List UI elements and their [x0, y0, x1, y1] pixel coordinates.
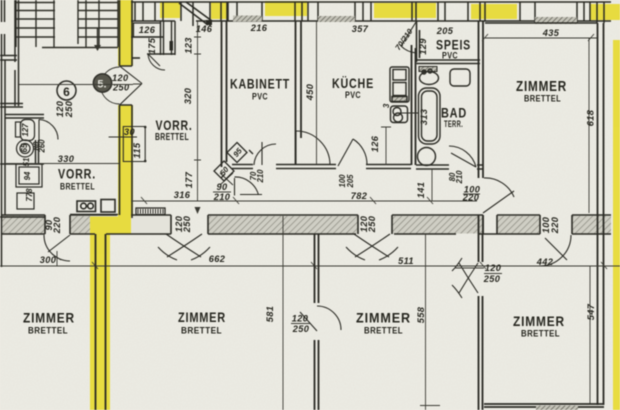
svg-text:511: 511	[398, 256, 414, 266]
svg-text:PVC: PVC	[442, 51, 458, 62]
svg-text:357: 357	[352, 24, 369, 34]
svg-text:250: 250	[64, 100, 74, 118]
svg-text:210: 210	[213, 192, 231, 202]
svg-text:141: 141	[416, 182, 426, 199]
svg-text:115: 115	[132, 142, 142, 158]
svg-text:662: 662	[209, 254, 226, 264]
svg-text:BRETTEL: BRETTEL	[521, 329, 560, 340]
svg-text:220: 220	[52, 216, 62, 234]
svg-text:778: 778	[25, 188, 34, 202]
svg-text:250: 250	[292, 324, 310, 334]
svg-text:ZIMMER: ZIMMER	[513, 313, 565, 329]
svg-text:782: 782	[351, 191, 368, 201]
svg-text:547: 547	[586, 303, 596, 320]
svg-text:VORR.: VORR.	[156, 117, 193, 133]
svg-text:205: 205	[346, 174, 355, 189]
svg-text:450: 450	[305, 83, 315, 101]
svg-text:TERR.: TERR.	[444, 119, 463, 130]
svg-text:120: 120	[485, 263, 502, 273]
svg-text:BRETTEL: BRETTEL	[524, 94, 561, 105]
svg-text:123: 123	[184, 37, 194, 54]
svg-text:BRETTEL: BRETTEL	[60, 182, 95, 193]
svg-text:146: 146	[196, 24, 213, 34]
svg-text:216: 216	[250, 23, 268, 33]
svg-text:250: 250	[483, 274, 501, 284]
svg-text:PVC: PVC	[252, 92, 268, 103]
svg-text:250: 250	[182, 215, 192, 233]
svg-text:120: 120	[292, 314, 309, 324]
svg-text:210: 210	[455, 170, 464, 185]
svg-text:177: 177	[184, 171, 194, 188]
svg-text:6: 6	[63, 85, 70, 99]
svg-text:BRETTEL: BRETTEL	[155, 132, 189, 143]
svg-text:618: 618	[586, 109, 596, 126]
svg-text:129: 129	[418, 38, 428, 55]
svg-text:250: 250	[112, 83, 130, 93]
svg-text:KABINETT: KABINETT	[230, 77, 290, 92]
svg-text:PVC: PVC	[345, 90, 361, 101]
svg-text:BRETTEL: BRETTEL	[364, 326, 403, 337]
svg-text:330: 330	[58, 154, 75, 164]
svg-text:126: 126	[139, 25, 156, 35]
svg-text:127: 127	[21, 123, 30, 137]
svg-text:260: 260	[38, 139, 47, 154]
svg-text:316: 316	[174, 190, 191, 200]
svg-text:ZIMMER: ZIMMER	[178, 309, 226, 325]
svg-text:435: 435	[542, 28, 560, 38]
svg-text:BRETTEL: BRETTEL	[181, 326, 222, 337]
svg-text:94: 94	[23, 171, 32, 180]
svg-text:BRETTEL: BRETTEL	[28, 326, 68, 337]
svg-text:ZIMMER: ZIMMER	[23, 310, 75, 326]
svg-text:313: 313	[419, 109, 429, 126]
svg-text:175: 175	[147, 37, 157, 54]
svg-text:442: 442	[536, 257, 554, 267]
svg-text:30: 30	[124, 127, 136, 137]
svg-text:KÜCHE: KÜCHE	[332, 76, 374, 91]
svg-text:65: 65	[20, 143, 29, 152]
svg-text:581: 581	[265, 306, 275, 323]
svg-text:210: 210	[256, 169, 265, 184]
svg-text:126: 126	[370, 135, 380, 152]
svg-text:3: 3	[382, 103, 391, 108]
svg-text:300: 300	[40, 255, 57, 265]
svg-text:51: 51	[22, 158, 31, 167]
svg-text:558: 558	[416, 306, 426, 323]
svg-text:220: 220	[550, 216, 560, 234]
svg-text:VORR.: VORR.	[58, 167, 96, 182]
svg-text:205: 205	[436, 26, 454, 36]
svg-text:ZIMMER: ZIMMER	[356, 310, 411, 326]
svg-text:90: 90	[216, 182, 228, 192]
svg-text:320: 320	[183, 87, 193, 104]
svg-text:250: 250	[367, 215, 377, 233]
svg-text:120: 120	[112, 73, 129, 83]
